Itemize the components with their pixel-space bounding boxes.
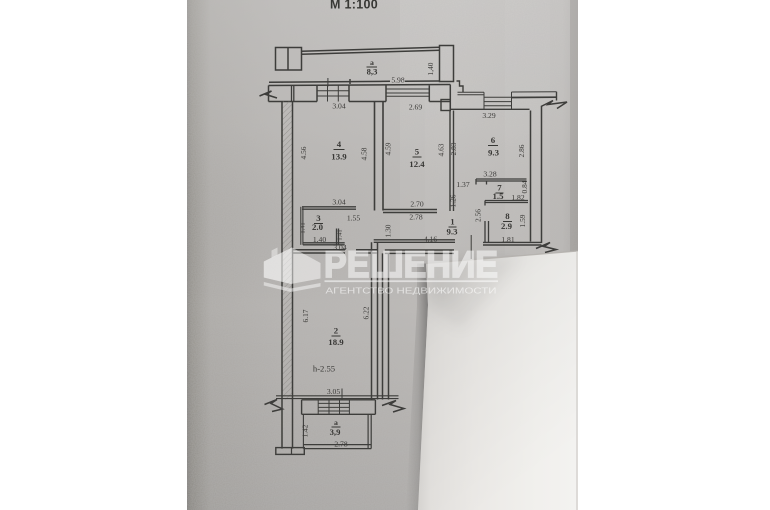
svg-text:2.9: 2.9 (501, 221, 513, 231)
svg-text:3.04: 3.04 (332, 102, 345, 111)
svg-text:1.59: 1.59 (518, 214, 527, 227)
svg-text:1,40: 1,40 (426, 62, 435, 75)
svg-text:РЕШЕНИЕ: РЕШЕНИЕ (324, 244, 498, 285)
svg-text:3.29: 3.29 (482, 111, 495, 120)
svg-text:4.63: 4.63 (437, 143, 446, 156)
svg-text:1.30: 1.30 (384, 224, 393, 237)
svg-text:h-2.55: h-2.55 (313, 364, 335, 374)
svg-text:2.56: 2.56 (474, 209, 483, 222)
svg-text:1: 1 (450, 217, 454, 227)
svg-text:3.05: 3.05 (327, 387, 340, 396)
svg-text:2.86: 2.86 (517, 144, 526, 157)
svg-text:АГЕНТСТВО НЕДВИЖИМОСТИ: АГЕНТСТВО НЕДВИЖИМОСТИ (326, 287, 497, 296)
svg-text:0.84: 0.84 (520, 180, 529, 193)
svg-text:1.42: 1.42 (301, 424, 310, 437)
svg-text:8,3: 8,3 (367, 67, 378, 77)
svg-text:9.3: 9.3 (447, 227, 459, 237)
svg-text:4.58: 4.58 (360, 147, 369, 160)
svg-text:5: 5 (415, 147, 420, 157)
svg-text:3,9: 3,9 (330, 427, 341, 437)
svg-text:6: 6 (491, 135, 496, 145)
svg-text:5.98: 5.98 (391, 76, 404, 85)
svg-text:а: а (334, 418, 338, 427)
svg-text:3.28: 3.28 (483, 170, 496, 179)
svg-text:13.9: 13.9 (331, 152, 347, 162)
svg-text:М 1:100: М 1:100 (330, 0, 378, 11)
svg-text:18.9: 18.9 (328, 337, 344, 347)
svg-text:2.69: 2.69 (409, 103, 422, 112)
svg-text:8: 8 (505, 211, 510, 221)
svg-text:2: 2 (334, 326, 339, 336)
svg-text:9.3: 9.3 (488, 148, 500, 158)
svg-text:1.5: 1.5 (493, 191, 505, 201)
svg-text:1.41: 1.41 (337, 229, 344, 240)
svg-text:4.59: 4.59 (384, 142, 393, 155)
svg-text:4.56: 4.56 (299, 146, 308, 159)
svg-text:6.17: 6.17 (301, 309, 310, 322)
svg-text:3.04: 3.04 (332, 198, 345, 207)
svg-text:1.37: 1.37 (456, 180, 469, 189)
svg-text:1.55: 1.55 (347, 214, 360, 223)
svg-text:6.22: 6.22 (362, 306, 371, 319)
svg-text:2.78: 2.78 (334, 440, 347, 449)
svg-text:2.70: 2.70 (410, 200, 423, 209)
svg-text:4: 4 (337, 139, 342, 149)
svg-text:12.4: 12.4 (409, 159, 425, 169)
svg-text:2.78: 2.78 (409, 213, 422, 222)
